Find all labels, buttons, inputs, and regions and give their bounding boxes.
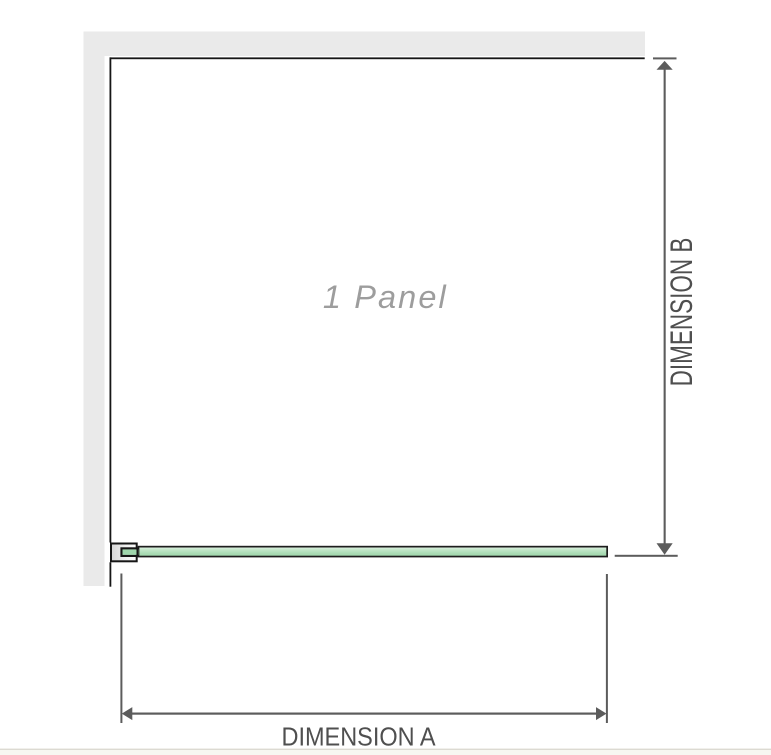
svg-text:1 Panel: 1 Panel <box>323 279 448 315</box>
svg-text:DIMENSION B: DIMENSION B <box>663 238 698 387</box>
svg-text:DIMENSION A: DIMENSION A <box>282 724 436 752</box>
